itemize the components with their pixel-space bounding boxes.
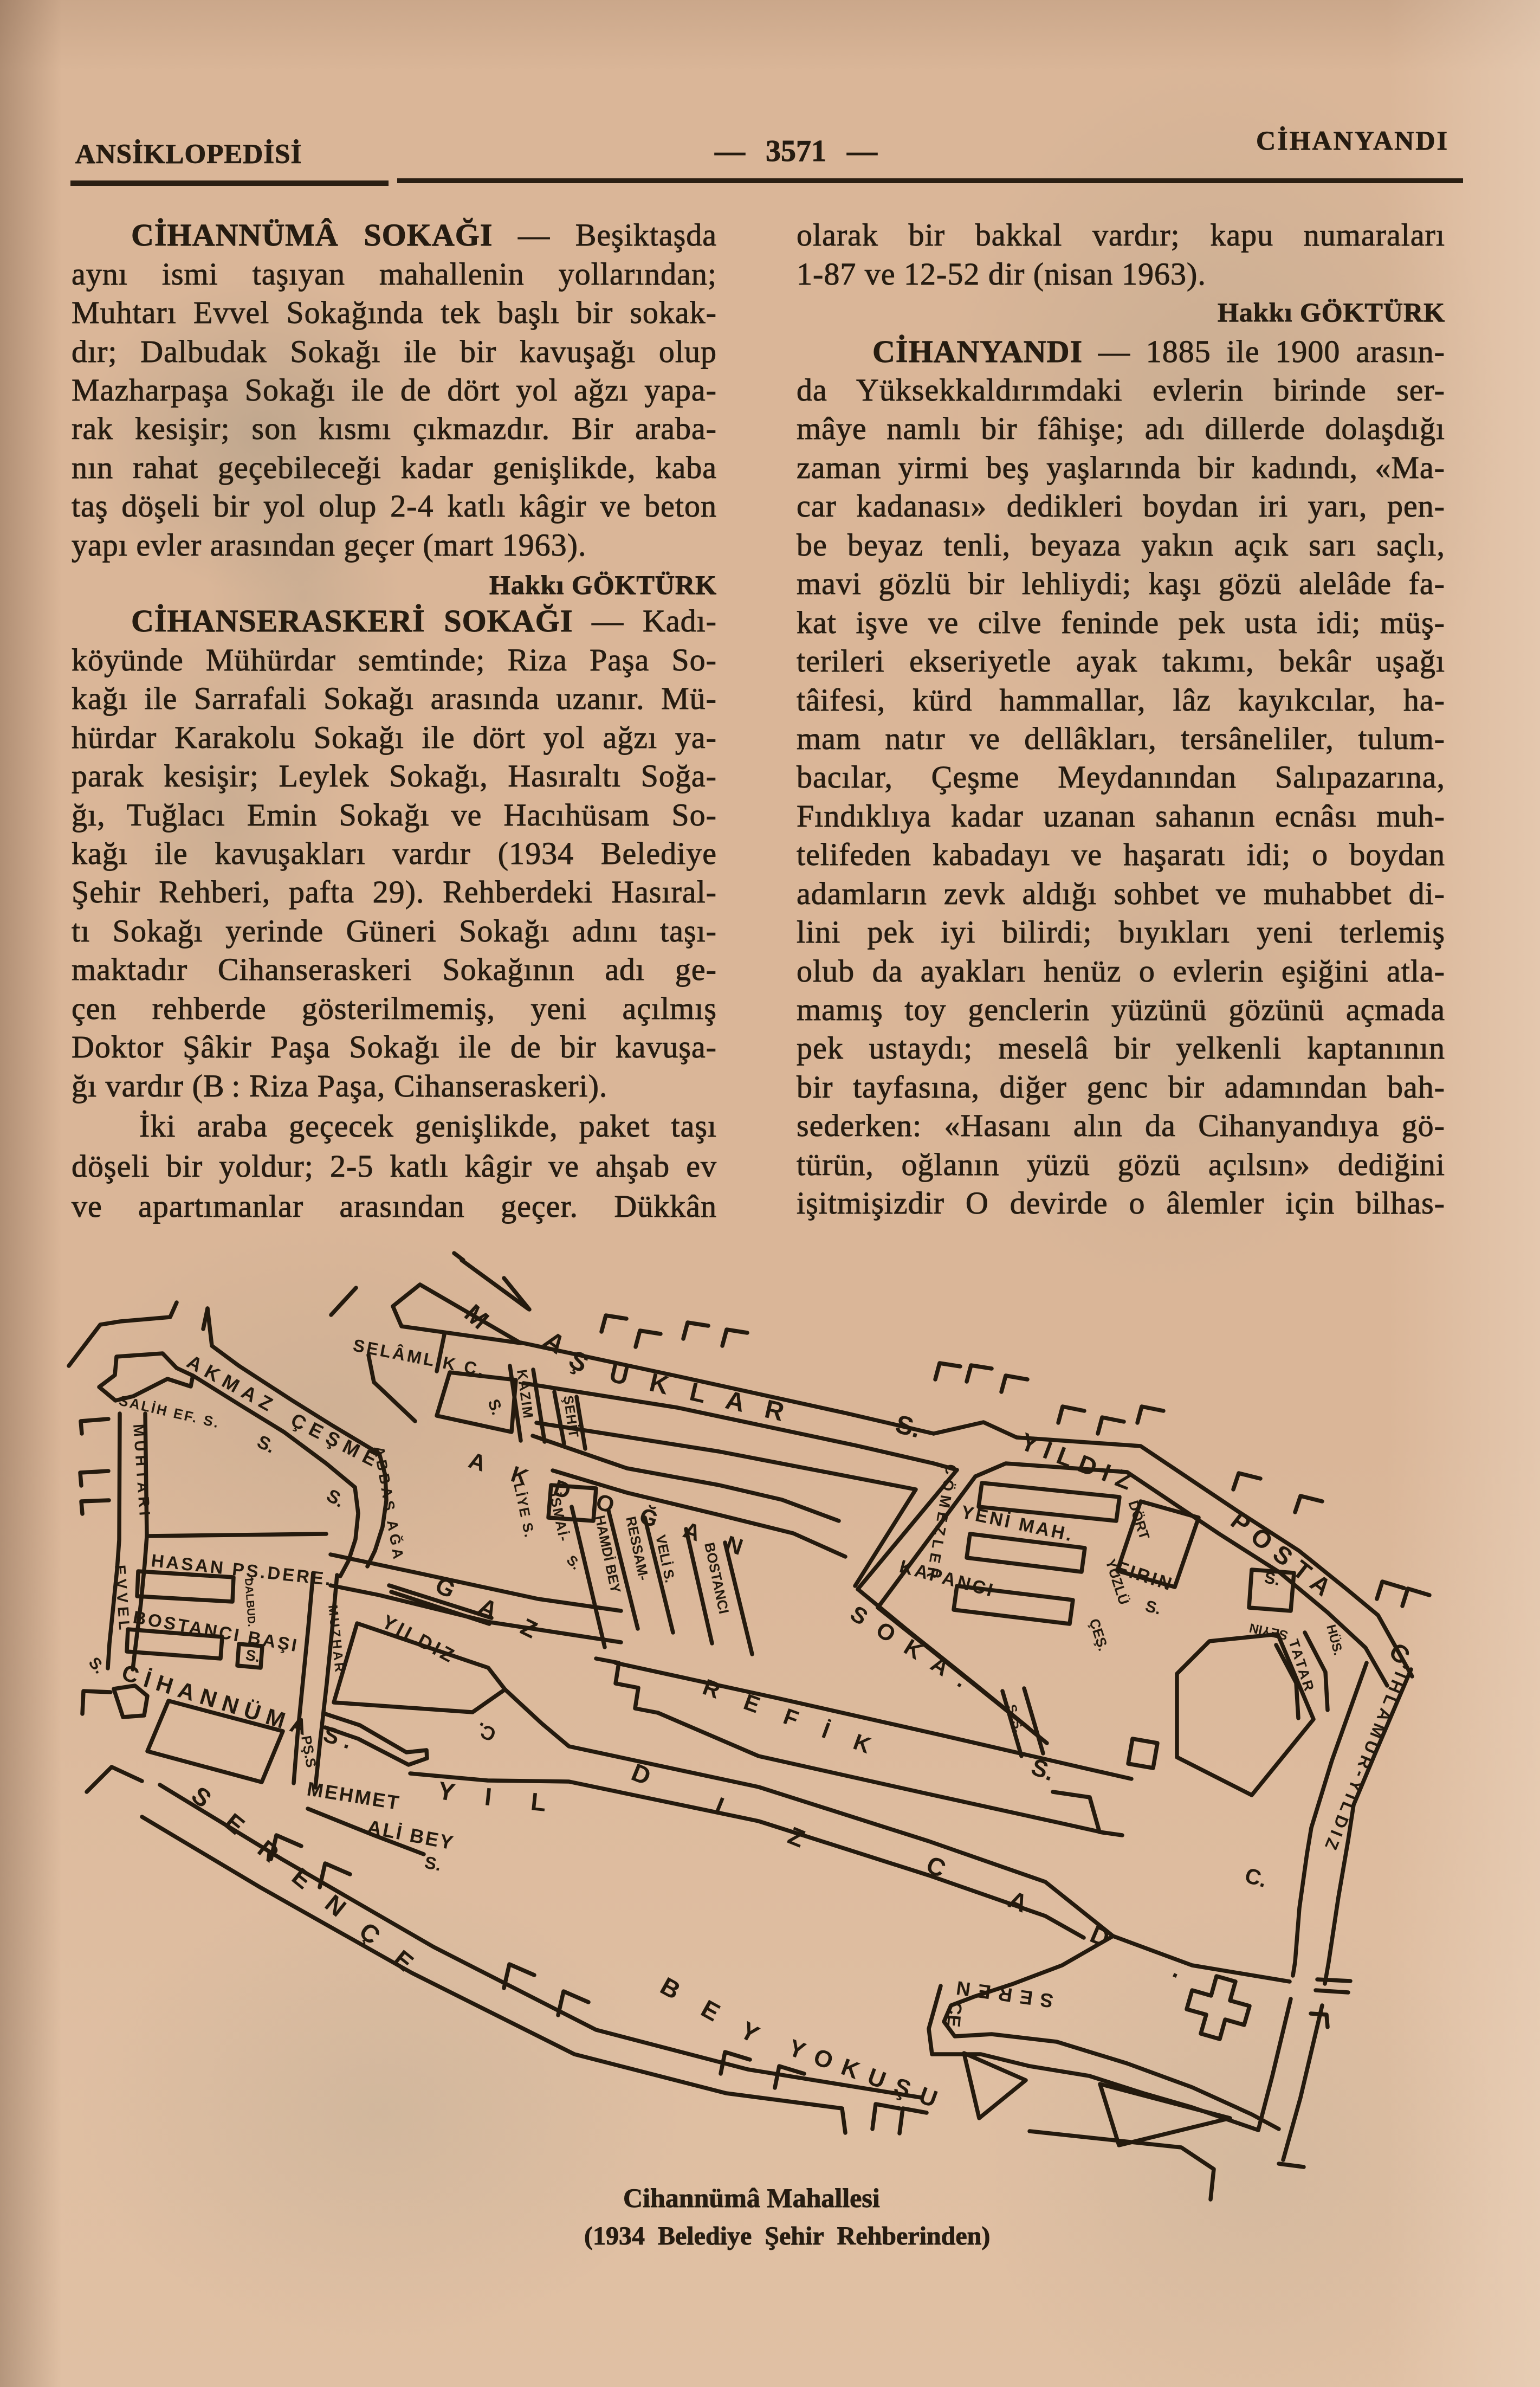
svg-text:S.: S. bbox=[323, 1485, 348, 1512]
svg-text:S.: S. bbox=[1143, 1597, 1163, 1618]
svg-text:B E Y: B E Y bbox=[656, 1971, 773, 2054]
svg-text:CE: CE bbox=[943, 2001, 966, 2028]
svg-text:DALBUD.: DALBUD. bbox=[242, 1578, 257, 1627]
svg-text:YILDIZ: YILDIZ bbox=[378, 1610, 461, 1668]
svg-text:S.: S. bbox=[244, 1646, 261, 1665]
svg-text:SOKA.: SOKA. bbox=[846, 1601, 985, 1701]
svg-text:S.: S. bbox=[892, 1410, 923, 1443]
svg-text:I L: I L bbox=[483, 1782, 564, 1818]
svg-text:C A D .: C A D . bbox=[922, 1850, 1217, 1996]
svg-text:KAPANCI: KAPANCI bbox=[897, 1556, 997, 1601]
svg-text:C.: C. bbox=[1384, 1637, 1421, 1674]
svg-text:Ş: Ş bbox=[564, 1345, 593, 1379]
svg-text:MEHMET: MEHMET bbox=[306, 1777, 402, 1814]
svg-text:U K L A R: U K L A R bbox=[607, 1359, 794, 1429]
svg-text:S.: S. bbox=[423, 1853, 443, 1875]
svg-text:HASAN PŞ.DERE.: HASAN PŞ.DERE. bbox=[150, 1550, 334, 1589]
svg-text:POSTA: POSTA bbox=[1226, 1506, 1343, 1607]
svg-text:MUHTARI: MUHTARI bbox=[130, 1423, 153, 1520]
svg-text:ÇEŞ.: ÇEŞ. bbox=[1086, 1617, 1111, 1653]
svg-text:S.: S. bbox=[254, 1431, 279, 1457]
svg-text:Ş. S.: Ş. S. bbox=[1004, 1703, 1026, 1734]
svg-text:Y: Y bbox=[436, 1776, 457, 1807]
svg-text:C.: C. bbox=[472, 1718, 499, 1746]
svg-text:S.: S. bbox=[1028, 1753, 1058, 1786]
svg-text:S.: S. bbox=[85, 1654, 109, 1677]
svg-text:SEYİN: SEYİN bbox=[1248, 1620, 1289, 1642]
svg-text:EVVEL: EVVEL bbox=[112, 1564, 133, 1634]
svg-text:M: M bbox=[459, 1299, 494, 1335]
svg-text:S.: S. bbox=[1263, 1569, 1282, 1589]
svg-text:D I Z: D I Z bbox=[627, 1758, 839, 1865]
svg-text:A: A bbox=[539, 1326, 571, 1360]
svg-text:ÇEŞME: ÇEŞME bbox=[287, 1409, 386, 1474]
svg-text:S.: S. bbox=[484, 1397, 506, 1417]
svg-text:C.: C. bbox=[1243, 1863, 1270, 1892]
